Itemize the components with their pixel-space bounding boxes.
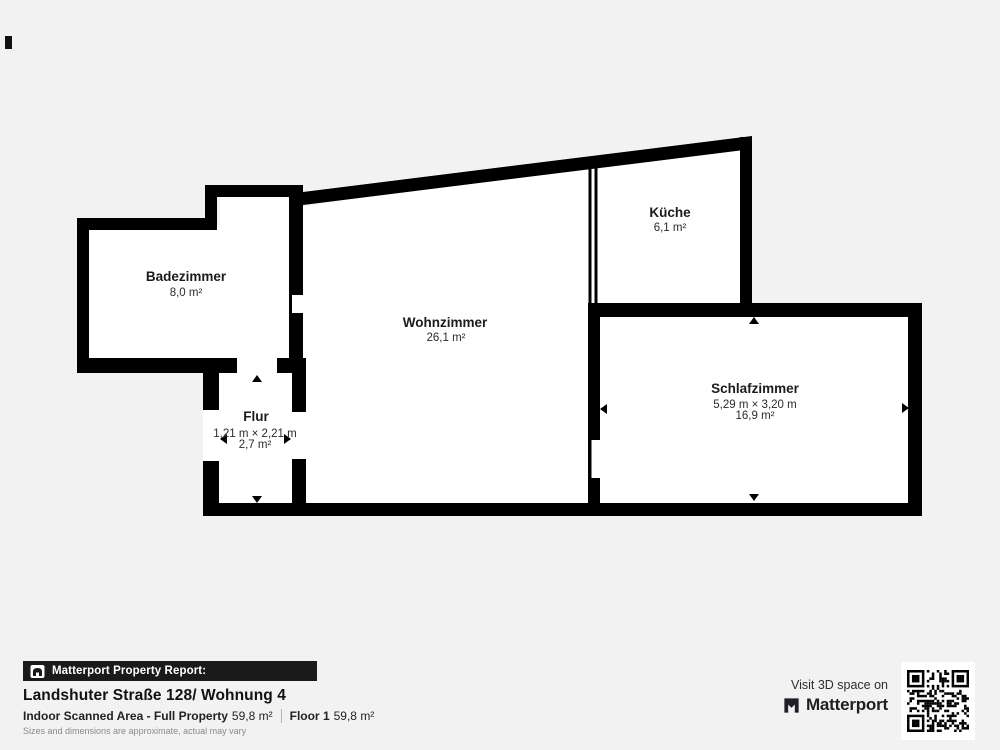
disclaimer-text: Sizes and dimensions are approximate, ac… — [23, 726, 246, 736]
room-area-schlafzimmer: 16,9 m² — [736, 410, 775, 422]
window-line-right — [595, 168, 598, 305]
room-area-flur: 2,7 m² — [239, 439, 272, 451]
room-label-schlafzimmer: Schlafzimmer — [711, 381, 800, 396]
wall-bottom-main — [203, 503, 922, 516]
wall-badezimmer-left — [77, 218, 89, 372]
room-area-badezimmer: 8,0 m² — [170, 287, 203, 299]
wall-mid-horizontal — [588, 303, 922, 317]
property-icon — [30, 664, 45, 679]
room-area-kueche: 6,1 m² — [654, 222, 687, 234]
wall-schlafzimmer-right — [908, 303, 922, 516]
room-label-flur: Flur — [243, 409, 269, 424]
qr-code — [907, 670, 969, 732]
room-label-badezimmer: Badezimmer — [146, 269, 227, 284]
opening-badezimmer-wohnzimmer — [292, 295, 303, 313]
matterport-logo: Matterport — [782, 695, 888, 715]
area-summary: Indoor Scanned Area - Full Property 59,8… — [23, 709, 374, 723]
matterport-wordmark: Matterport — [806, 695, 888, 715]
report-banner: Matterport Property Report: — [23, 661, 317, 681]
floor-label: Floor 1 — [290, 709, 330, 723]
floor-plan: Badezimmer 8,0 m² Wohnzimmer 26,1 m² Küc… — [0, 0, 1000, 750]
room-label-wohnzimmer: Wohnzimmer — [403, 315, 488, 330]
room-area-wohnzimmer: 26,1 m² — [427, 332, 466, 344]
page-edge-artifact — [5, 36, 12, 49]
opening-badezimmer-flur — [237, 356, 277, 375]
window-line-left — [589, 168, 592, 305]
opening-wohnzimmer-schlafzimmer — [592, 440, 601, 478]
summary-divider — [281, 709, 282, 723]
report-banner-label: Matterport Property Report: — [52, 665, 206, 677]
room-label-kueche: Küche — [649, 205, 691, 220]
wall-badezimmer-topleft — [77, 218, 217, 230]
wall-schlafzimmer-left — [588, 303, 600, 516]
wall-badezimmer-top — [205, 185, 303, 197]
property-title: Landshuter Straße 128/ Wohnung 4 — [23, 687, 286, 705]
visit-3d-label: Visit 3D space on — [782, 678, 888, 692]
scanned-area-value: 59,8 m² — [232, 709, 273, 723]
wall-kueche-right — [740, 137, 752, 317]
floor-value: 59,8 m² — [334, 709, 375, 723]
property-report-page: Badezimmer 8,0 m² Wohnzimmer 26,1 m² Küc… — [0, 0, 1000, 750]
scanned-area-label: Indoor Scanned Area - Full Property — [23, 709, 228, 723]
wall-badezimmer-right — [289, 185, 303, 373]
matterport-m-icon — [782, 696, 801, 715]
qr-code-box — [901, 662, 975, 740]
visit-3d-block: Visit 3D space on Matterport — [782, 678, 888, 715]
